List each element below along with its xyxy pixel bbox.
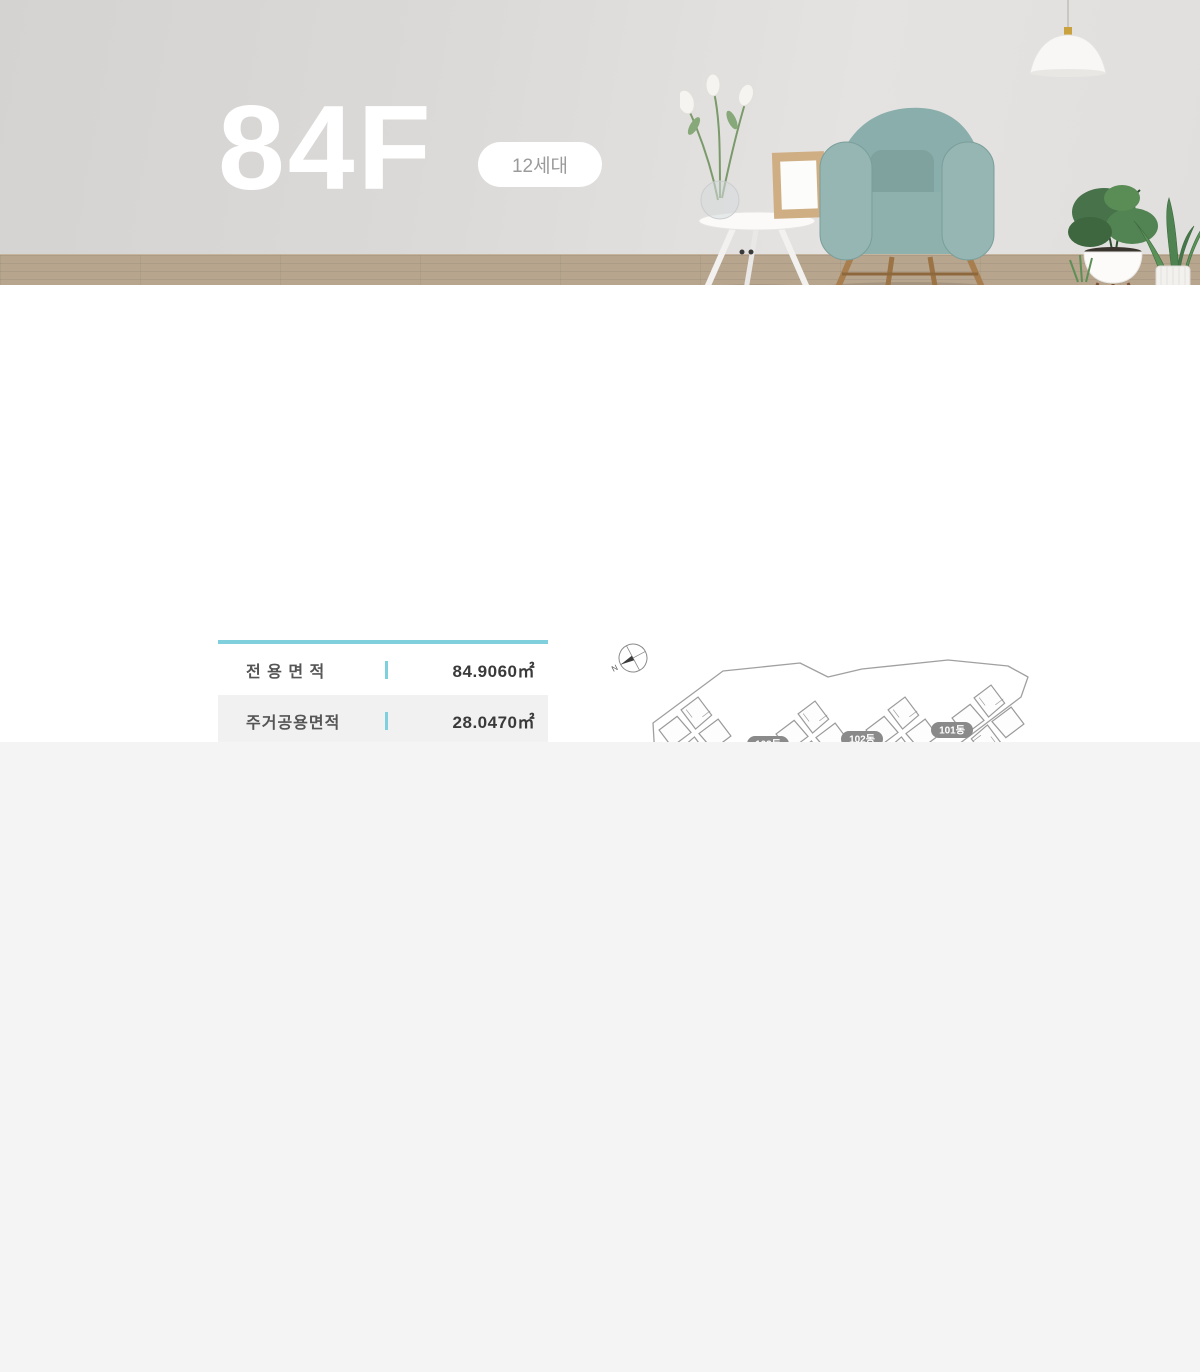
hero-photo-scene [680, 0, 1200, 285]
building-label-101: 101동 [931, 722, 973, 738]
side-table [699, 212, 815, 285]
page: 84F 12세대 전 용 면 적 84.9060㎡ 주거공용면적 28.0470… [0, 0, 1200, 1372]
floorplan-section: 실외기실 다용도실 주방 알파룸 드레스룸 현관 욕실1 욕실2 거실 침실3 … [0, 742, 1200, 1372]
area-value: 28.0470㎡ [388, 708, 548, 733]
area-label: 전 용 면 적 [218, 658, 385, 682]
area-value: 84.9060㎡ [388, 657, 548, 682]
svg-text:101동: 101동 [939, 725, 965, 737]
compass-icon: N [605, 639, 652, 682]
flower-vase [680, 74, 756, 219]
table-row: 주거공용면적 28.0470㎡ [218, 695, 548, 746]
household-count-badge: 12세대 [478, 142, 602, 187]
area-label: 주거공용면적 [218, 709, 385, 733]
info-section: 전 용 면 적 84.9060㎡ 주거공용면적 28.0470㎡ 공 급 면 적… [0, 285, 1200, 742]
unit-type-title: 84F [218, 88, 434, 208]
armchair [820, 108, 994, 285]
picture-frame [772, 151, 826, 219]
compass-north-label: N [610, 663, 620, 674]
hero-section: 84F 12세대 [0, 0, 1200, 285]
pendant-lamp-icon [1030, 0, 1106, 77]
table-row: 전 용 면 적 84.9060㎡ [218, 644, 548, 695]
